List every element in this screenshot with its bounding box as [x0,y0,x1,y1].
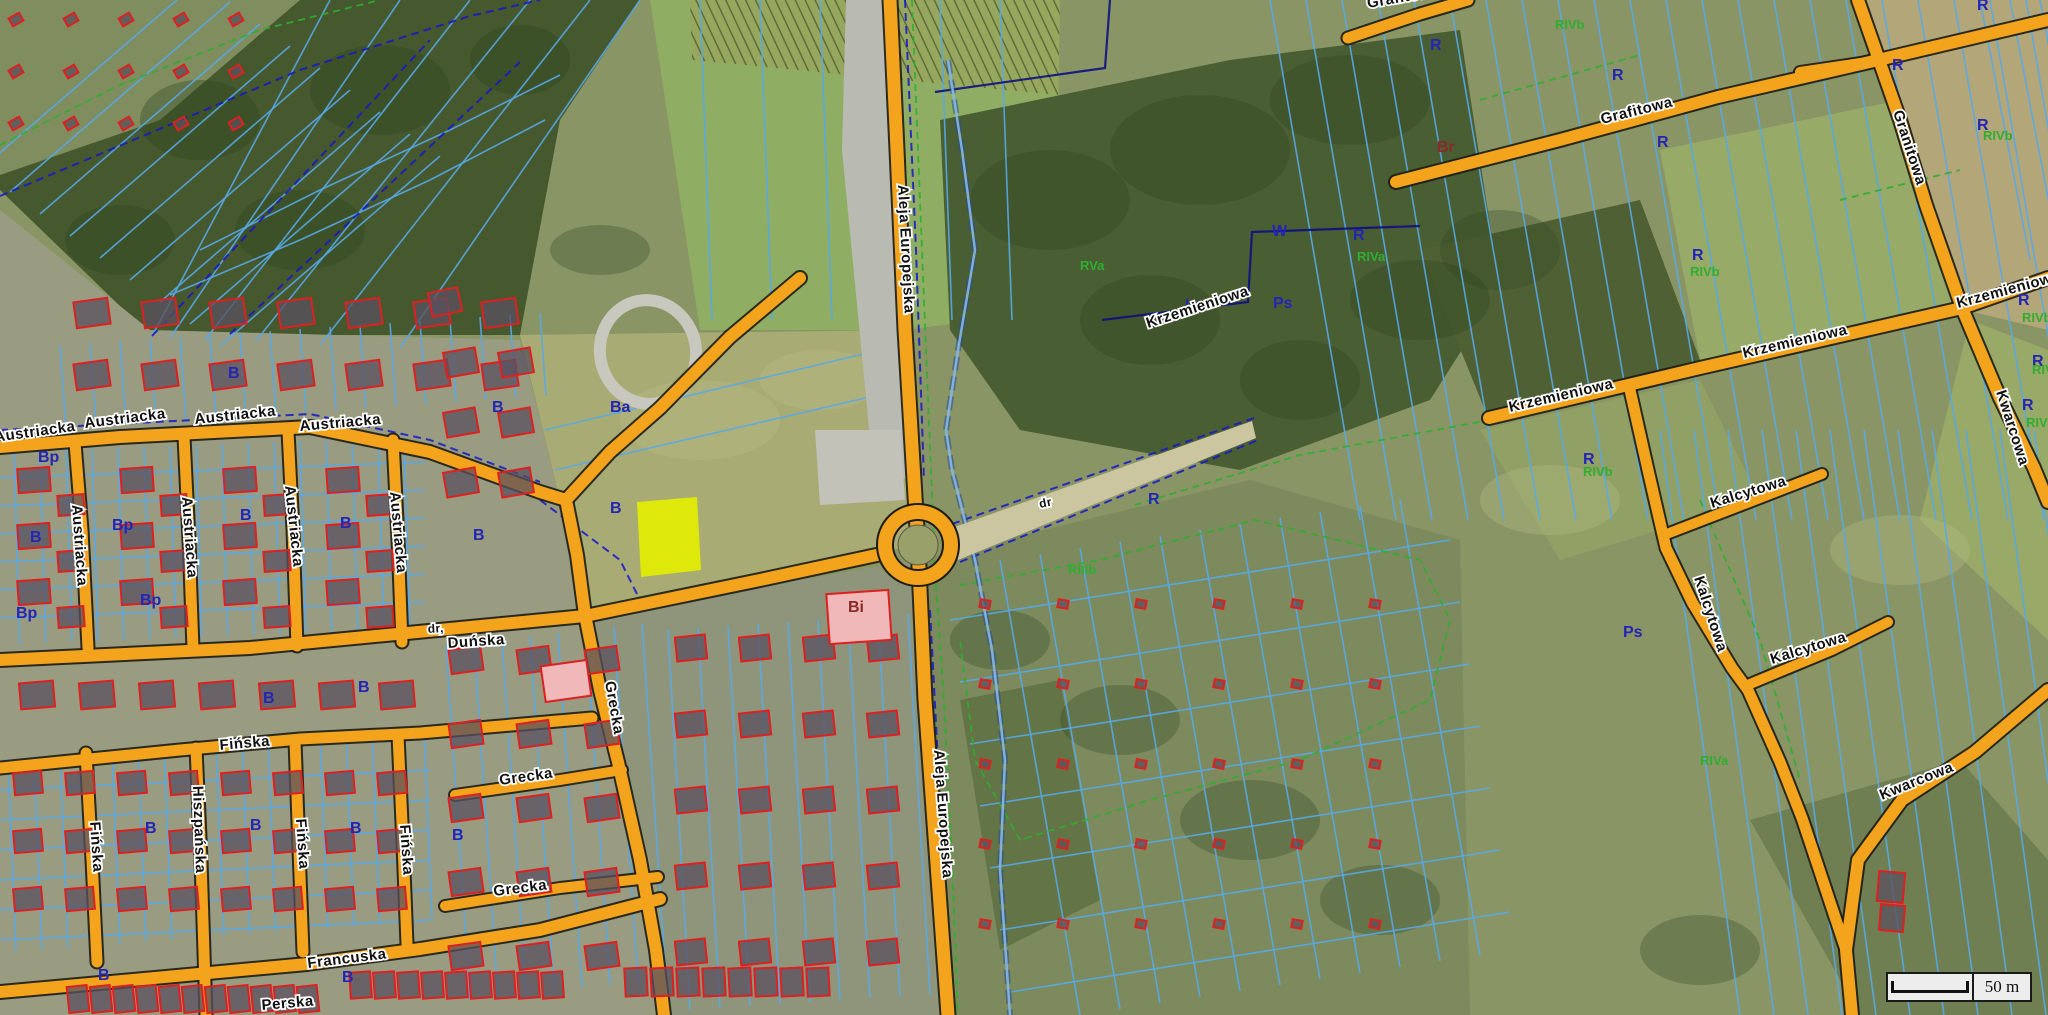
landuse-code-label: RIVb [2026,415,2048,430]
building [481,298,518,328]
building [443,467,479,497]
building [469,971,492,998]
building [806,967,829,996]
building [675,786,707,813]
building [739,786,771,813]
street-label: Fińska [86,821,106,873]
building [803,786,835,813]
building [448,942,483,970]
building [739,710,771,737]
vegetation-blob [470,25,570,95]
building [139,681,175,710]
building [803,862,835,889]
landuse-code-label: B [342,969,354,986]
landuse-code-label: RIVb [1690,264,1720,279]
building [1877,871,1906,903]
building [739,938,771,965]
building [448,794,483,822]
landuse-code-label: B [145,820,157,837]
building [421,971,444,998]
building [1213,839,1224,849]
scale-bar-bracket [1891,981,1969,993]
building [584,794,619,822]
building [141,298,178,328]
parcel-line-strips-right-lower [1762,430,1842,1015]
building [345,298,382,328]
map-canvas[interactable]: BpBpBpBpBBBBBBBBBBBBBBBBaBiBrWPsPsLzRRRR… [0,0,2048,1015]
landuse-code-label: Ps [1623,624,1643,641]
landuse-code-label: R [1148,491,1160,508]
building [1135,759,1146,769]
building [650,967,673,996]
building [90,985,113,1013]
street-label: Fińska [396,824,416,876]
building [1057,679,1068,689]
building [117,887,147,911]
building [493,971,516,998]
building [182,985,205,1013]
building [377,771,407,795]
landuse-code-label: RVa [1080,258,1105,273]
building [448,868,483,896]
building [325,887,355,911]
building [326,579,360,605]
building [397,971,420,998]
landuse-code-label: R [1430,37,1442,54]
building [728,967,751,996]
landuse-code-label: Ba [610,399,631,416]
building [516,794,551,822]
building [1291,599,1302,609]
landuse-code-label: B [350,820,362,837]
building [516,720,551,748]
building [676,967,699,996]
building [117,829,147,853]
vegetation-blob [950,610,1050,670]
landuse-code-label: Br [1437,139,1455,156]
building [1057,919,1068,929]
building [979,759,990,769]
building [169,887,199,911]
building [17,579,51,605]
map-viewport[interactable]: BpBpBpBpBBBBBBBBBBBBBBBBaBiBrWPsPsLzRRRR… [0,0,2048,1015]
landuse-code-label: RIVb [1555,17,1585,32]
building [79,681,115,710]
landuse-code-label: RIVb [2022,310,2048,325]
building [448,720,483,748]
building [1213,759,1224,769]
landuse-code-label: B [358,679,370,696]
building [379,681,415,710]
landuse-code-label: RIVb [1583,464,1613,479]
landuse-code-label: B [492,399,504,416]
building [428,287,462,317]
building [366,550,393,572]
building [517,971,540,998]
landuse-code-label: W [1272,223,1288,240]
landuse-code-label: RIIIb [1068,562,1096,577]
building [17,467,51,493]
street-label: Hiszpańska [189,786,209,874]
building [160,606,187,628]
building [1135,919,1146,929]
building [136,985,159,1013]
landuse-code-label: B [30,529,42,546]
building [1057,759,1068,769]
paved-parking-nw-roundabout [815,430,905,505]
building [443,347,479,377]
building [113,985,136,1013]
landuse-code-label: B [228,365,240,382]
building [120,467,154,493]
building [19,681,55,710]
landuse-code-label: Bp [16,605,38,622]
building [273,887,303,911]
building [67,985,90,1013]
building [223,579,257,605]
building [1135,679,1146,689]
building [803,938,835,965]
building [675,862,707,889]
building [273,771,303,795]
roundabout-island [898,525,938,565]
scale-bar-graphic [1888,974,1974,1000]
building [443,407,479,437]
building [223,467,257,493]
building [675,710,707,737]
building [159,985,182,1013]
landuse-code-label: B [610,500,622,517]
building [541,971,564,998]
building [117,771,147,795]
building [541,660,592,702]
vegetation-blob [1640,915,1760,985]
building [1369,679,1380,689]
building [277,360,314,390]
building [867,938,899,965]
building [803,710,835,737]
vegetation-blob [550,225,650,275]
building [1057,599,1068,609]
building [1135,599,1146,609]
building [1369,759,1380,769]
building [199,681,235,710]
building [263,606,290,628]
building [373,971,396,998]
building [13,829,43,853]
building [73,360,110,390]
building [1879,904,1905,932]
building [1213,919,1224,929]
building [345,360,382,390]
landuse-code-label: RIVa [1700,753,1729,768]
building [867,710,899,737]
building [739,634,771,661]
building [65,771,95,795]
building [1135,839,1146,849]
scale-bar: 50 m [1886,972,2032,1002]
building [221,887,251,911]
building [739,862,771,889]
vegetation-blob [1110,95,1290,205]
building [675,938,707,965]
vegetation-blob [1240,340,1360,420]
building [1213,679,1224,689]
building [325,771,355,795]
street-label: dr, [427,621,444,636]
landuse-code-label: Bp [38,449,60,466]
landuse-code-label: R [1612,67,1624,84]
building [326,467,360,493]
building [516,942,551,970]
building [1291,919,1302,929]
landuse-code-label: B [263,690,275,707]
vegetation-blob [310,45,450,135]
building [979,919,990,929]
building [675,634,707,661]
landuse-code-label: B [250,817,262,834]
building [979,599,990,609]
building [780,967,803,996]
landuse-code-label: R [1977,0,1989,14]
landuse-code-label: B [340,515,352,532]
building [221,829,251,853]
scale-bar-label: 50 m [1974,974,2030,1000]
landuse-code-label: B [452,827,464,844]
street-label: Fińska [292,818,312,870]
building [263,550,290,572]
building [1369,839,1380,849]
landuse-code-label: R [2022,397,2034,414]
building [1369,599,1380,609]
landuse-code-label: RIVa [1357,249,1386,264]
landuse-code-label: R [1692,247,1704,264]
highlighted-parcel[interactable] [637,497,701,577]
building [65,887,95,911]
building [584,868,619,896]
building [13,771,43,795]
landuse-code-label: B [98,967,110,984]
building [277,298,314,328]
building [445,971,468,998]
landuse-code-label: RIVb [2032,362,2048,377]
building [377,887,407,911]
building [13,887,43,911]
building [223,523,257,549]
landuse-code-label: R [1353,227,1365,244]
building [228,985,251,1013]
landuse-code-label: B [240,507,252,524]
building [1291,759,1302,769]
landuse-code-label: Bp [140,592,162,609]
landuse-code-label: R [1657,134,1669,151]
building [209,298,246,328]
building [498,347,534,377]
building [1213,599,1224,609]
vegetation-blob [970,150,1130,250]
vegetation-blob [1270,55,1430,145]
building [73,298,110,328]
landuse-code-label: Bp [112,517,134,534]
building [57,606,84,628]
building [702,967,725,996]
landuse-code-label: Ps [1273,295,1293,312]
building [366,606,393,628]
building [867,862,899,889]
landuse-code-label: B [473,527,485,544]
building [1057,839,1068,849]
building [979,839,990,849]
building [498,467,534,497]
building [1291,839,1302,849]
building [584,942,619,970]
building [205,985,228,1013]
building [867,786,899,813]
building [754,967,777,996]
building [141,360,178,390]
building [221,771,251,795]
building [1369,919,1380,929]
building [1291,679,1302,689]
building [624,967,647,996]
landuse-code-label: R [1892,57,1904,74]
building [319,681,355,710]
vegetation-blob [760,350,880,410]
landuse-code-label: RIVb [1983,128,2013,143]
landuse-code-label: Bi [848,599,864,616]
building [979,679,990,689]
building [584,646,619,674]
